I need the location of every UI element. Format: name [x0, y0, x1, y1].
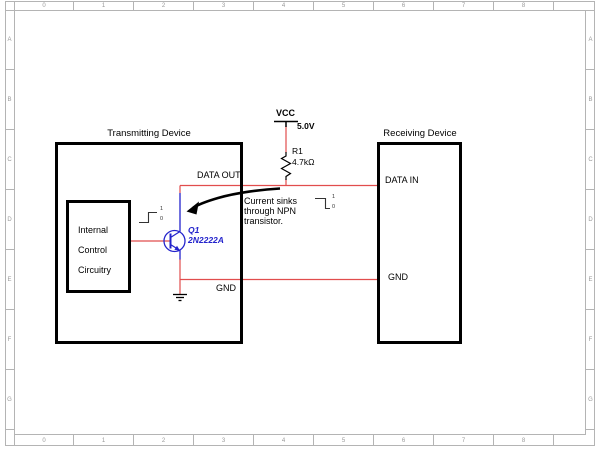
vcc-voltage-label: 5.0V — [297, 122, 315, 131]
internal-block-line-3: Circuitry — [78, 265, 111, 275]
receiver-title: Receiving Device — [365, 129, 475, 139]
tx-waveform-high-label: 1 — [160, 206, 163, 212]
data-in-label: DATA IN — [385, 175, 419, 185]
annotation-line-1: Current sinks — [244, 196, 297, 206]
tx-waveform-low-label: 0 — [160, 216, 163, 222]
schematic-sheet: 012345678 012345678 ABCDEFG ABCDEFG — [0, 0, 600, 450]
rx-gnd-label: GND — [388, 272, 408, 282]
transistor-ref-label: Q1 — [188, 226, 199, 235]
data-out-label: DATA OUT — [197, 170, 241, 180]
annotation-line-3: transistor. — [244, 216, 283, 226]
vcc-net-label: VCC — [276, 108, 295, 118]
annotation-line-2: through NPN — [244, 206, 296, 216]
transmitter-title: Transmitting Device — [55, 129, 243, 139]
resistor-ref-label: R1 — [292, 147, 303, 156]
tx-gnd-label: GND — [216, 283, 236, 293]
rx-waveform-low-label: 0 — [332, 204, 335, 210]
receiving-device-box[interactable] — [377, 142, 462, 344]
vcc-power-symbol[interactable] — [274, 122, 298, 128]
resistor-value-label: 4.7kΩ — [292, 158, 314, 167]
falling-edge-waveform-icon — [315, 199, 330, 209]
internal-block-line-2: Control — [78, 245, 107, 255]
resistor-symbol[interactable] — [282, 152, 291, 180]
internal-block-line-1: Internal — [78, 225, 108, 235]
rx-waveform-high-label: 1 — [332, 194, 335, 200]
transistor-part-label: 2N2222A — [188, 236, 224, 245]
